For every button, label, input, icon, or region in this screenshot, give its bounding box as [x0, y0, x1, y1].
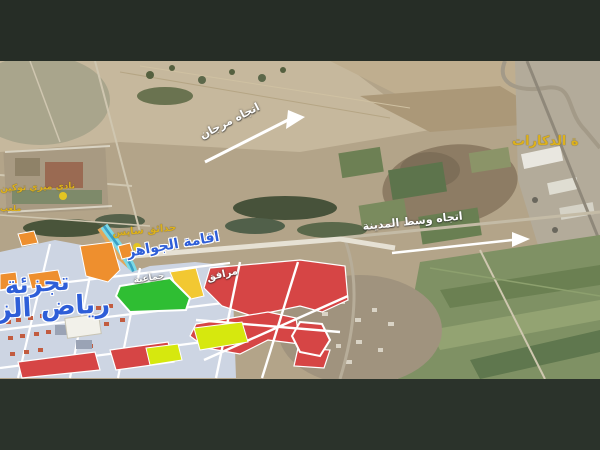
plan-white-building [65, 314, 101, 339]
club-marker-dot [59, 192, 67, 200]
screenshot-root: اتجاه مرجان ة الدكارات اتجاه وسط المدينة… [0, 0, 600, 450]
letterbox-bottom [0, 379, 600, 450]
letterbox-top [0, 0, 600, 61]
gardens-marker-dot [133, 243, 141, 251]
satellite-map-canvas[interactable] [0, 0, 600, 450]
